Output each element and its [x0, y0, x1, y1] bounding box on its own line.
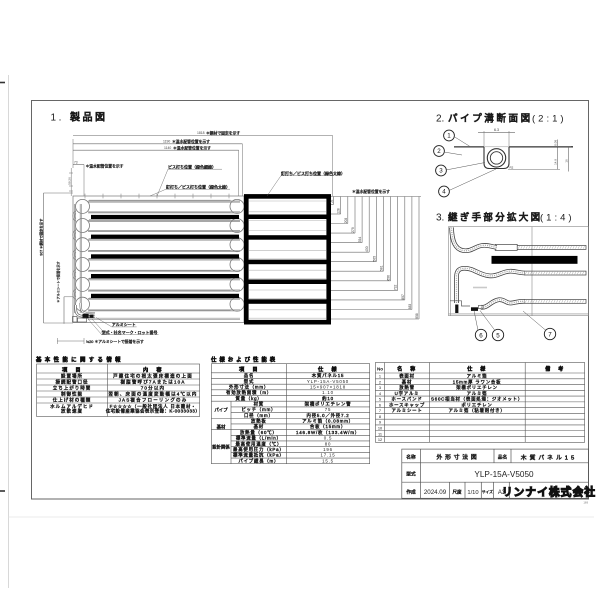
- svg-text:8: 8: [379, 414, 381, 419]
- svg-text:59.26: 59.26: [67, 177, 71, 185]
- svg-text:4: 4: [442, 189, 446, 196]
- svg-text:YLP-15A-V5050: YLP-15A-V5050: [474, 470, 534, 479]
- svg-text:内 容: 内 容: [143, 365, 163, 373]
- svg-text:(2:1): (2:1): [532, 114, 567, 125]
- svg-text:70分以内: 70分以内: [141, 384, 166, 391]
- svg-text:12: 12: [378, 437, 382, 442]
- svg-text:戸建住宅の根太張床構造の上面: 戸建住宅の根太張床構造の上面: [113, 372, 193, 379]
- svg-text:430: 430: [365, 246, 369, 252]
- svg-text:立ち上がり時間: 立ち上がり時間: [53, 384, 92, 391]
- svg-text:パイプ溝断面図: パイプ溝断面図: [448, 113, 533, 125]
- svg-text:75: 75: [325, 407, 331, 412]
- svg-text:釘打ち／ビス打ち位置（緑色太線）: 釘打ち／ビス打ち位置（緑色太線）: [281, 170, 345, 176]
- svg-text:169: 169: [583, 501, 588, 505]
- svg-text:6.3: 6.3: [494, 128, 499, 132]
- svg-text:1.: 1.: [51, 113, 65, 124]
- svg-text:作成: 作成: [406, 489, 416, 496]
- svg-text:アルミシート: アルミシート: [112, 322, 136, 327]
- svg-text:基材: 基材: [402, 378, 412, 384]
- svg-text:732: 732: [394, 284, 398, 290]
- svg-text:＊温水配管位置を示す: ＊温水配管位置を示す: [86, 164, 124, 169]
- svg-text:7: 7: [548, 331, 552, 338]
- svg-text:1/10: 1/10: [467, 490, 478, 496]
- svg-text:2024.09: 2024.09: [424, 489, 447, 496]
- svg-text:1140: 1140: [164, 146, 171, 150]
- svg-text:基材: 基材: [254, 423, 264, 429]
- svg-text:1818: 1818: [197, 131, 205, 135]
- svg-text:14.9: 14.9: [553, 159, 557, 165]
- svg-text:仕 様: 仕 様: [317, 365, 338, 373]
- svg-text:ピッチ（mm）: ピッチ（mm）: [241, 407, 276, 412]
- svg-text:型式・社名マーク・ロット番号: 型式・社名マーク・ロット番号: [102, 329, 158, 335]
- svg-text:リンナイ株式会社: リンナイ株式会社: [502, 485, 596, 498]
- svg-text:パイプ総長（m）: パイプ総長（m）: [238, 457, 279, 464]
- svg-text:2: 2: [379, 379, 381, 384]
- svg-text:5: 5: [496, 332, 500, 339]
- svg-text:9: 9: [379, 420, 381, 425]
- svg-text:15×907×1818: 15×907×1818: [310, 385, 346, 390]
- svg-text:279: 279: [351, 227, 355, 233]
- svg-text:0.5: 0.5: [324, 436, 333, 441]
- svg-text:128: 128: [337, 208, 341, 214]
- svg-text:名称: 名称: [406, 454, 416, 461]
- svg-text:1.10: 1.10: [322, 390, 334, 395]
- svg-text:52: 52: [330, 199, 334, 203]
- svg-text:6: 6: [379, 402, 381, 407]
- svg-text:1190: 1190: [163, 140, 170, 144]
- svg-text:6: 6: [479, 332, 483, 339]
- svg-text:3.: 3.: [436, 213, 444, 224]
- svg-text:外形寸法図: 外形寸法図: [437, 453, 480, 461]
- svg-text:JAS複合フローリングのみ: JAS複合フローリングのみ: [119, 396, 188, 403]
- svg-text:翌朝、床面の温度変動幅は4℃以内: 翌朝、床面の温度変動幅は4℃以内: [108, 390, 197, 397]
- svg-text:接続配管口径: 接続配管口径: [56, 378, 89, 385]
- svg-text:2: 2: [437, 148, 441, 155]
- svg-text:基本性能に関する情報: 基本性能に関する情報: [35, 356, 124, 364]
- svg-text:放散速度: 放散速度: [61, 408, 83, 415]
- svg-text:196: 196: [323, 447, 333, 452]
- svg-text:サイズ: サイズ: [482, 489, 493, 494]
- svg-text:1: 1: [379, 374, 381, 379]
- svg-text:R2: R2: [510, 166, 514, 170]
- svg-text:継ぎ手部分拡大図: 継ぎ手部分拡大図: [448, 212, 542, 224]
- svg-text:No: No: [377, 367, 383, 372]
- svg-text:口径（mm）: 口径（mm）: [244, 412, 274, 418]
- svg-text:型式: 型式: [244, 378, 254, 384]
- svg-text:73: 73: [74, 160, 78, 164]
- svg-text:11: 11: [378, 431, 382, 436]
- svg-text:釘打ち／ビス打ち位置（緑色太線）: 釘打ち／ビス打ち位置（緑色太線）: [166, 183, 230, 189]
- svg-text:品名: 品名: [498, 454, 507, 461]
- svg-text:設置場所: 設置場所: [61, 372, 83, 379]
- svg-text:項 目: 項 目: [62, 365, 82, 373]
- svg-text:656: 656: [387, 275, 391, 281]
- svg-text:807: 807: [401, 294, 405, 300]
- svg-text:仕上げ材の種類: 仕上げ材の種類: [53, 396, 92, 403]
- svg-text:ホースバンド: ホースバンド: [391, 397, 422, 402]
- svg-text:型式: 型式: [406, 471, 416, 477]
- svg-text:備 考: 備 考: [545, 366, 565, 373]
- svg-text:ビス打ち位置（緑色細線）: ビス打ち位置（緑色細線）: [168, 163, 216, 169]
- svg-text:ポリエチレン: ポリエチレン: [461, 401, 492, 407]
- svg-text:製品図: 製品図: [70, 111, 108, 124]
- svg-text:203: 203: [344, 218, 348, 224]
- svg-text:581: 581: [379, 265, 383, 271]
- svg-text:17.15: 17.15: [321, 453, 336, 458]
- svg-text:(1:4): (1:4): [540, 213, 575, 224]
- svg-text:7: 7: [379, 408, 381, 413]
- svg-text:基材: 基材: [217, 424, 226, 430]
- svg-text:505: 505: [372, 256, 376, 262]
- svg-text:15.5: 15.5: [322, 458, 334, 463]
- svg-text:仕 様: 仕 様: [466, 366, 487, 373]
- svg-text:3: 3: [379, 385, 381, 390]
- svg-text:≒20 ＊アルミシートで接着を示す: ≒20 ＊アルミシートで接着を示す: [86, 339, 144, 344]
- svg-text:0.08: 0.08: [553, 140, 557, 146]
- svg-text:16: 16: [564, 159, 568, 163]
- svg-text:制御性能: 制御性能: [61, 390, 83, 397]
- svg-text:＊鋼材で固定を示す: ＊鋼材で固定を示す: [206, 131, 240, 136]
- svg-text:設計関係: 設計関係: [212, 443, 230, 450]
- svg-text:907 ＊鋼材で固定を示す: 907 ＊鋼材で固定を示す: [38, 218, 43, 256]
- svg-text:1: 1: [447, 133, 451, 140]
- svg-text:354: 354: [358, 237, 362, 243]
- svg-text:木質パネル15: 木質パネル15: [521, 453, 577, 461]
- svg-text:尺度: 尺度: [453, 489, 462, 496]
- svg-text:2.: 2.: [436, 114, 444, 125]
- svg-text:YLP-15A-V5050: YLP-15A-V5050: [307, 379, 349, 384]
- svg-text:アルミ箔（粘着剤付き）: アルミ箔（粘着剤付き）: [448, 407, 505, 414]
- svg-text:項 目: 項 目: [239, 365, 259, 373]
- svg-text:80: 80: [325, 441, 331, 446]
- svg-text:3: 3: [439, 168, 443, 175]
- svg-text:住宅設備産業協会表示登録：K-0033033）: 住宅設備産業協会表示登録：K-0033033）: [106, 408, 200, 415]
- svg-text:名 称: 名 称: [397, 366, 417, 373]
- svg-text:5: 5: [379, 397, 381, 402]
- svg-text:958: 958: [415, 313, 419, 319]
- svg-text:＊温水配管位置を示す: ＊温水配管位置を示す: [352, 189, 390, 194]
- svg-text:＊温水配管位置を示す: ＊温水配管位置を示す: [172, 139, 210, 144]
- svg-text:＊アルミシートで接着を示す: ＊アルミシートで接着を示す: [56, 261, 61, 302]
- svg-text:＊温水配管位置を示す: ＊温水配管位置を示す: [173, 145, 211, 150]
- svg-text:樹脂管呼び7Aまたは10A: 樹脂管呼び7Aまたは10A: [120, 378, 185, 385]
- svg-text:883: 883: [408, 304, 412, 310]
- svg-text:仕様および性能表: 仕様および性能表: [210, 356, 278, 364]
